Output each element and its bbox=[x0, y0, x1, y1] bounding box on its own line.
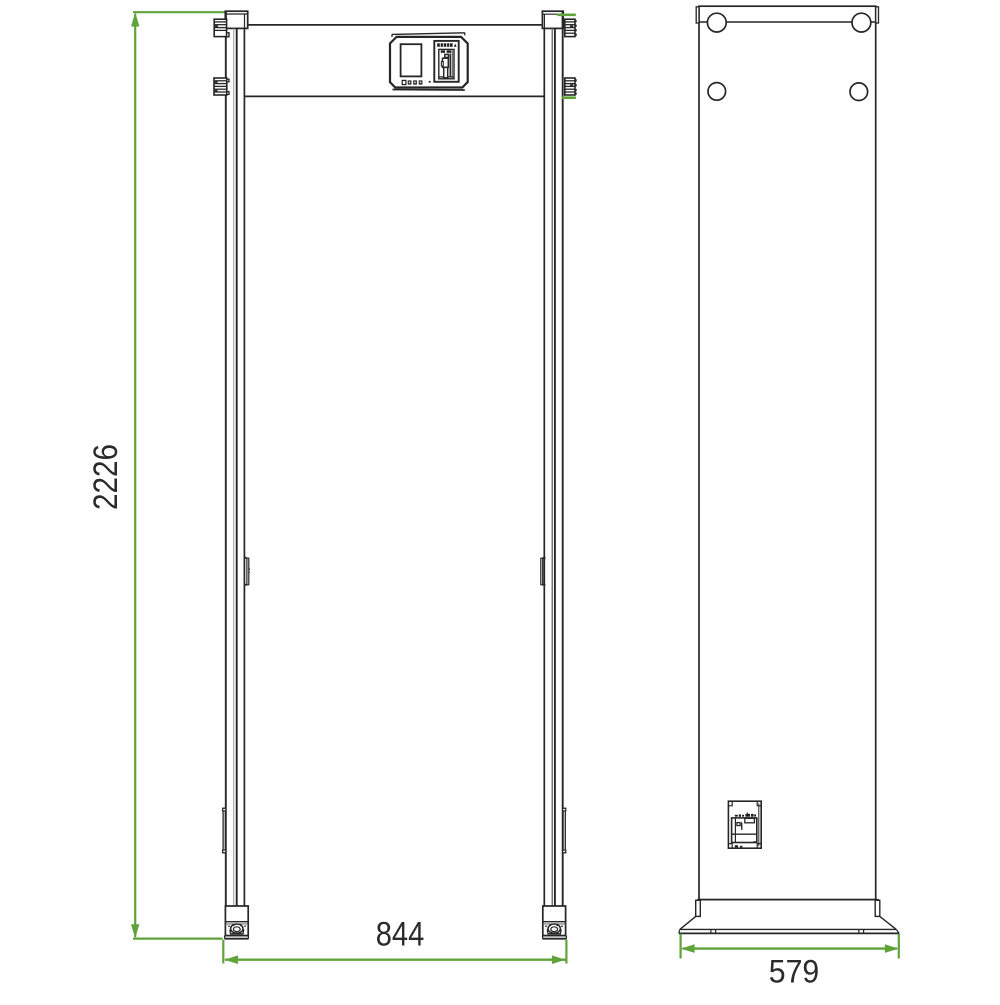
svg-text:579: 579 bbox=[769, 953, 820, 989]
svg-text:844: 844 bbox=[376, 916, 425, 954]
svg-text:2226: 2226 bbox=[87, 444, 125, 510]
